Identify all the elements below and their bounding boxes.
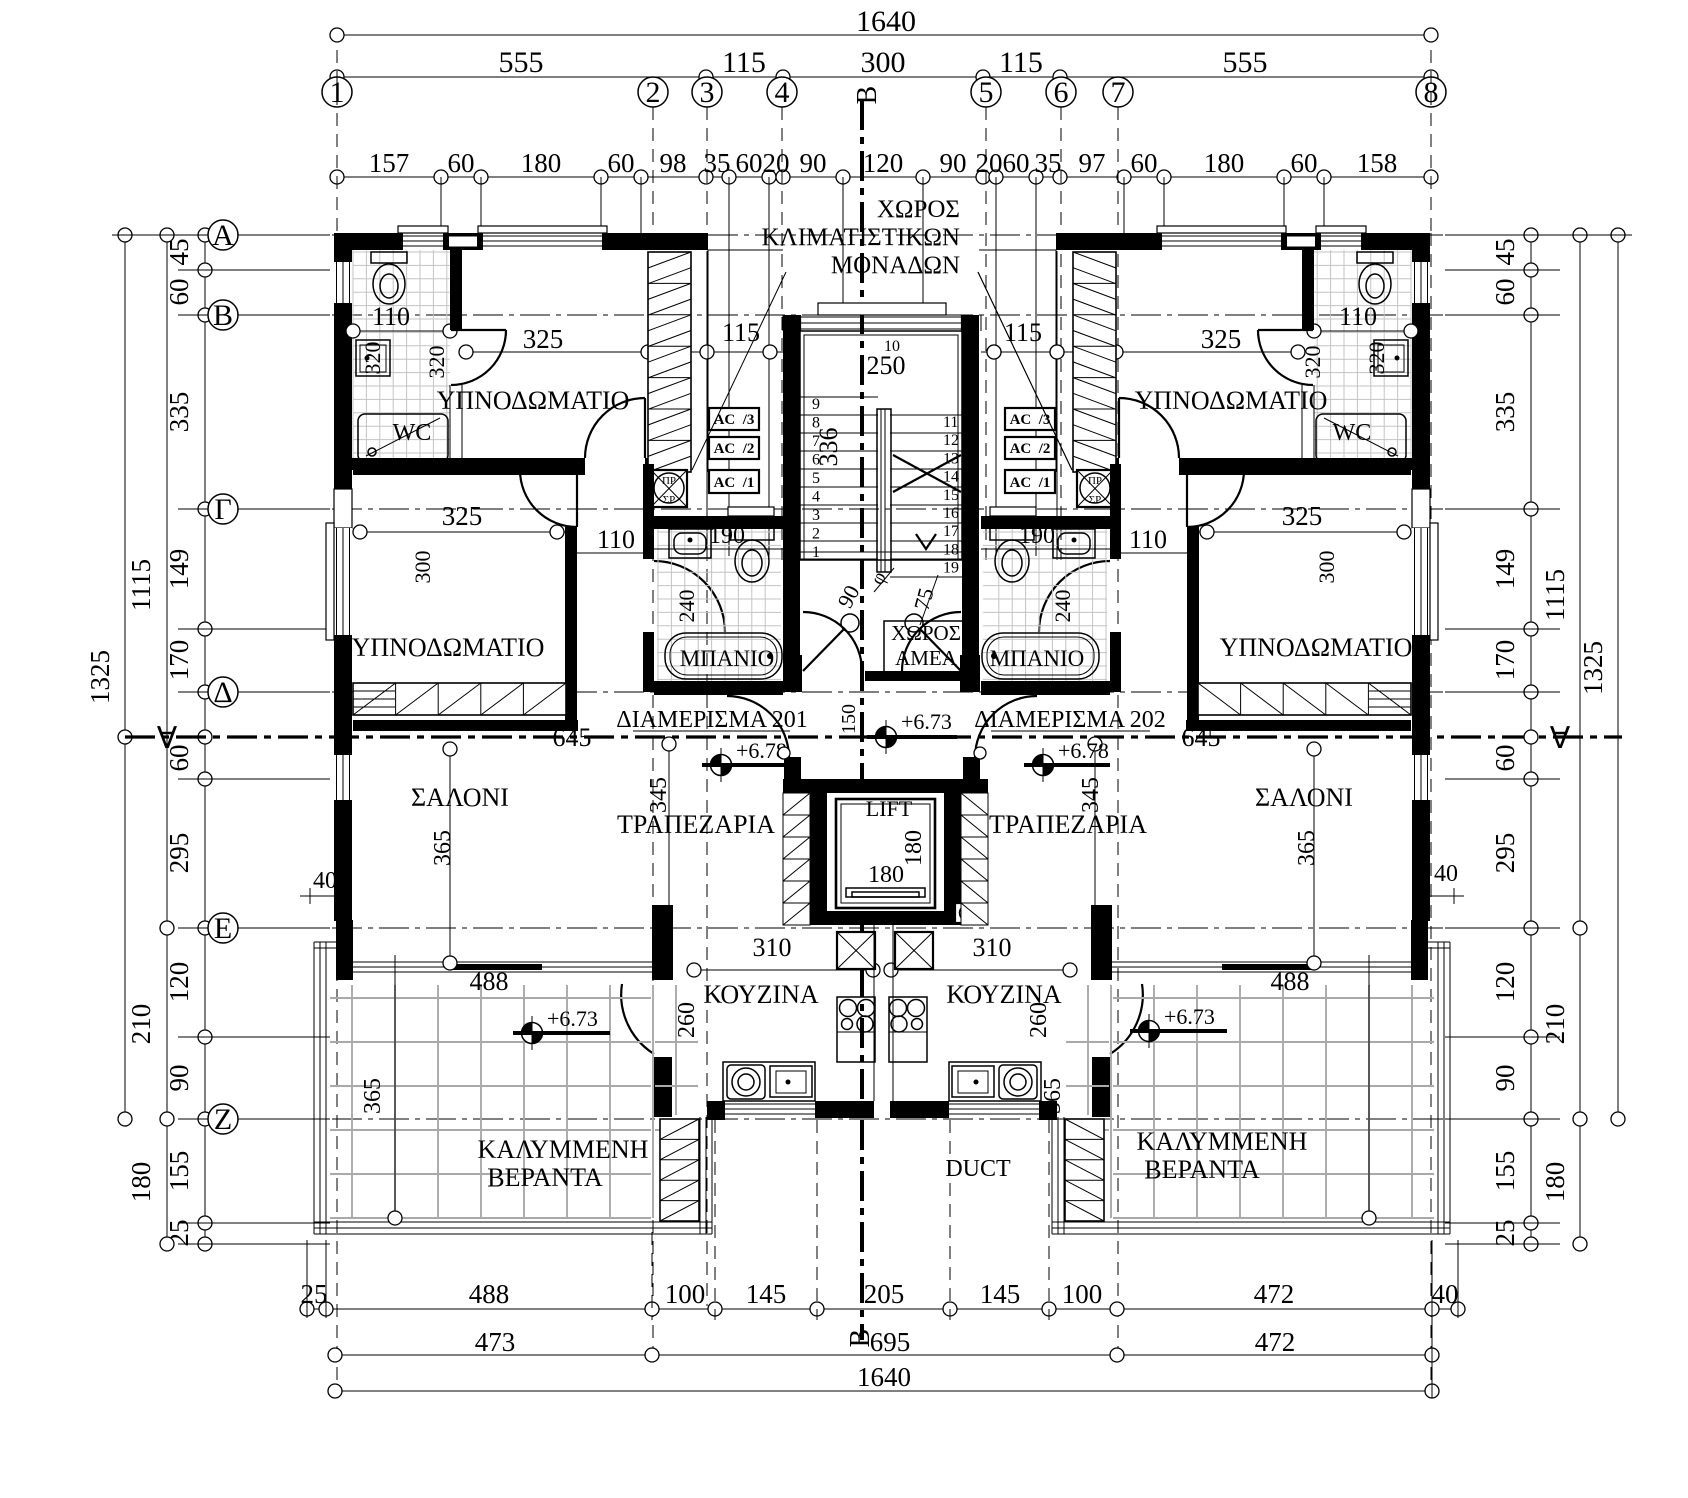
svg-text:645: 645 xyxy=(1182,723,1221,752)
svg-text:320: 320 xyxy=(1364,342,1389,375)
svg-text:40: 40 xyxy=(1432,1279,1459,1309)
svg-text:260: 260 xyxy=(1026,1002,1052,1038)
svg-text:∀: ∀ xyxy=(1550,722,1571,755)
svg-text:5: 5 xyxy=(812,470,820,487)
svg-text:+6.73: +6.73 xyxy=(547,1006,598,1031)
svg-text:335: 335 xyxy=(164,392,194,433)
svg-text:ΧΩΡΟΣ: ΧΩΡΟΣ xyxy=(877,196,960,223)
svg-text:A: A xyxy=(212,219,234,252)
svg-text:B: B xyxy=(852,86,883,105)
svg-text:170: 170 xyxy=(1490,640,1520,681)
svg-text:365: 365 xyxy=(1294,830,1320,866)
svg-text:115: 115 xyxy=(722,318,760,347)
svg-text:WC: WC xyxy=(393,420,432,446)
svg-text:240: 240 xyxy=(1050,590,1075,623)
svg-text:555: 555 xyxy=(1223,46,1268,79)
svg-text:Γ: Γ xyxy=(214,493,231,526)
svg-text:ΜΠΑΝΙΟ: ΜΠΑΝΙΟ xyxy=(680,646,775,671)
svg-text:110: 110 xyxy=(1129,525,1167,554)
svg-text:488: 488 xyxy=(470,967,509,996)
svg-text:35: 35 xyxy=(1035,148,1062,178)
svg-text:90: 90 xyxy=(940,148,967,178)
svg-text:60: 60 xyxy=(1003,148,1030,178)
svg-text:AC /1: AC /1 xyxy=(714,475,755,491)
svg-text:60: 60 xyxy=(448,148,475,178)
svg-text:60: 60 xyxy=(608,148,635,178)
svg-text:AC /3: AC /3 xyxy=(714,412,755,428)
svg-text:ΣΡ: ΣΡ xyxy=(663,494,676,506)
svg-text:115: 115 xyxy=(999,46,1043,79)
svg-text:1115: 1115 xyxy=(126,559,156,611)
svg-text:ΔΙΑΜΕΡΙΣΜΑ 201: ΔΙΑΜΕΡΙΣΜΑ 201 xyxy=(616,707,807,733)
svg-text:ΔΙΑΜΕΡΙΣΜΑ 202: ΔΙΑΜΕΡΙΣΜΑ 202 xyxy=(974,707,1165,733)
svg-text:ΚΛΙΜΑΤΙΣΤΙΚΩΝ: ΚΛΙΜΑΤΙΣΤΙΚΩΝ xyxy=(762,224,960,251)
svg-text:ΥΠΝΟΔΩΜΑΤΙΟ: ΥΠΝΟΔΩΜΑΤΙΟ xyxy=(437,386,630,415)
svg-text:60: 60 xyxy=(736,148,763,178)
svg-text:90: 90 xyxy=(1490,1065,1520,1092)
svg-text:145: 145 xyxy=(746,1279,787,1309)
svg-text:ΚΑΛΥΜΜΕΝΗ: ΚΑΛΥΜΜΕΝΗ xyxy=(1137,1127,1308,1156)
svg-text:ΚΟΥΖΙΝΑ: ΚΟΥΖΙΝΑ xyxy=(703,980,819,1009)
svg-text:1325: 1325 xyxy=(1578,641,1608,695)
svg-text:60: 60 xyxy=(1490,279,1520,306)
svg-text:45: 45 xyxy=(164,239,194,266)
svg-text:25: 25 xyxy=(1490,1220,1520,1247)
svg-text:5: 5 xyxy=(979,76,994,109)
svg-text:645: 645 xyxy=(553,723,592,752)
svg-text:98: 98 xyxy=(660,148,687,178)
svg-text:ΥΠΝΟΔΩΜΑΤΙΟ: ΥΠΝΟΔΩΜΑΤΙΟ xyxy=(1135,386,1328,415)
svg-text:90: 90 xyxy=(800,148,827,178)
svg-text:DUCT: DUCT xyxy=(945,1156,1011,1182)
svg-text:ΜΠΑΝΙΟ: ΜΠΑΝΙΟ xyxy=(990,646,1085,671)
svg-text:90: 90 xyxy=(164,1065,194,1092)
svg-text:325: 325 xyxy=(523,324,564,354)
svg-text:14: 14 xyxy=(943,469,959,486)
svg-text:2: 2 xyxy=(646,76,661,109)
svg-text:13: 13 xyxy=(943,450,959,467)
svg-text:320: 320 xyxy=(424,346,449,379)
svg-text:ΥΠΝΟΔΩΜΑΤΙΟ: ΥΠΝΟΔΩΜΑΤΙΟ xyxy=(352,633,545,662)
svg-text:250: 250 xyxy=(867,351,906,380)
svg-text:365: 365 xyxy=(430,830,456,866)
svg-text:555: 555 xyxy=(499,46,544,79)
svg-text:472: 472 xyxy=(1254,1279,1295,1309)
svg-text:145: 145 xyxy=(980,1279,1021,1309)
svg-text:ΤΡΑΠΕΖΑΡΙΑ: ΤΡΑΠΕΖΑΡΙΑ xyxy=(989,810,1147,839)
svg-text:157: 157 xyxy=(369,148,410,178)
svg-text:Z: Z xyxy=(214,1103,232,1136)
svg-text:97: 97 xyxy=(1079,148,1106,178)
svg-text:325: 325 xyxy=(1282,501,1323,531)
svg-text:158: 158 xyxy=(1357,148,1398,178)
svg-text:150: 150 xyxy=(838,704,860,734)
svg-text:35: 35 xyxy=(704,148,731,178)
svg-text:205: 205 xyxy=(864,1279,905,1309)
svg-text:20: 20 xyxy=(763,148,790,178)
svg-text:325: 325 xyxy=(1201,324,1242,354)
svg-text:488: 488 xyxy=(1271,967,1310,996)
svg-text:295: 295 xyxy=(164,833,194,874)
svg-text:∀: ∀ xyxy=(157,722,178,755)
svg-text:+6.73: +6.73 xyxy=(901,709,952,734)
svg-text:300: 300 xyxy=(1314,551,1339,584)
svg-text:B: B xyxy=(213,299,233,332)
svg-text:110: 110 xyxy=(597,525,635,554)
svg-text:19: 19 xyxy=(943,560,959,577)
svg-text:45: 45 xyxy=(1490,239,1520,266)
svg-text:260: 260 xyxy=(674,1002,700,1038)
svg-text:ΚΑΛΥΜΜΕΝΗ: ΚΑΛΥΜΜΕΝΗ xyxy=(478,1135,649,1164)
svg-text:115: 115 xyxy=(1004,318,1042,347)
svg-text:180: 180 xyxy=(901,830,927,866)
svg-text:320: 320 xyxy=(360,342,385,375)
svg-text:+6.73: +6.73 xyxy=(1164,1004,1215,1029)
svg-text:320: 320 xyxy=(1300,346,1325,379)
svg-text:180: 180 xyxy=(868,862,904,888)
svg-text:345: 345 xyxy=(646,777,672,813)
svg-text:18: 18 xyxy=(943,541,959,558)
svg-text:100: 100 xyxy=(665,1279,706,1309)
svg-text:120: 120 xyxy=(1490,962,1520,1003)
svg-text:+6.78: +6.78 xyxy=(1058,738,1109,763)
svg-text:190: 190 xyxy=(1019,523,1055,549)
svg-text:473: 473 xyxy=(475,1327,516,1357)
svg-text:12: 12 xyxy=(943,432,959,449)
svg-text:210: 210 xyxy=(126,1004,156,1045)
svg-text:365: 365 xyxy=(360,1078,386,1114)
svg-text:40: 40 xyxy=(313,868,337,894)
svg-text:ΒΕΡΑΝΤΑ: ΒΕΡΑΝΤΑ xyxy=(487,1163,603,1192)
svg-text:ΜΟΝΑΔΩΝ: ΜΟΝΑΔΩΝ xyxy=(831,252,960,279)
svg-text:310: 310 xyxy=(973,933,1012,962)
svg-text:310: 310 xyxy=(753,933,792,962)
svg-text:ΣΡ: ΣΡ xyxy=(1089,494,1102,506)
svg-text:AC /2: AC /2 xyxy=(1010,441,1051,457)
svg-text:180: 180 xyxy=(521,148,562,178)
svg-text:ΠΡ: ΠΡ xyxy=(662,475,676,487)
svg-text:336: 336 xyxy=(814,428,843,467)
svg-text:ΤΡΑΠΕΖΑΡΙΑ: ΤΡΑΠΕΖΑΡΙΑ xyxy=(617,810,775,839)
svg-text:25: 25 xyxy=(301,1279,328,1309)
svg-text:190: 190 xyxy=(709,523,745,549)
svg-text:210: 210 xyxy=(1540,1004,1570,1045)
svg-text:170: 170 xyxy=(164,640,194,681)
svg-text:AC /3: AC /3 xyxy=(1010,412,1051,428)
svg-text:40: 40 xyxy=(1434,861,1458,887)
svg-text:1: 1 xyxy=(812,544,820,561)
svg-text:3: 3 xyxy=(812,507,820,524)
svg-text:15: 15 xyxy=(943,487,959,504)
svg-text:AC /2: AC /2 xyxy=(714,441,755,457)
svg-text:60: 60 xyxy=(1291,148,1318,178)
svg-text:60: 60 xyxy=(1490,745,1520,772)
svg-text:6: 6 xyxy=(1054,76,1069,109)
svg-text:LIFT: LIFT xyxy=(866,796,913,821)
svg-text:1640: 1640 xyxy=(856,5,916,38)
svg-text:60: 60 xyxy=(1131,148,1158,178)
svg-text:240: 240 xyxy=(674,590,699,623)
svg-text:16: 16 xyxy=(943,505,959,522)
svg-text:345: 345 xyxy=(1078,777,1104,813)
svg-text:1640: 1640 xyxy=(857,1362,911,1392)
svg-text:180: 180 xyxy=(126,1162,156,1203)
svg-text:472: 472 xyxy=(1255,1327,1296,1357)
svg-text:1325: 1325 xyxy=(85,650,115,704)
svg-text:2: 2 xyxy=(812,526,820,543)
svg-text:110: 110 xyxy=(372,302,410,331)
svg-text:AC /1: AC /1 xyxy=(1010,475,1051,491)
svg-text:ΥΠΝΟΔΩΜΑΤΙΟ: ΥΠΝΟΔΩΜΑΤΙΟ xyxy=(1220,633,1413,662)
svg-text:ΠΡ: ΠΡ xyxy=(1088,475,1102,487)
svg-text:488: 488 xyxy=(469,1279,510,1309)
svg-text:ΒΕΡΑΝΤΑ: ΒΕΡΑΝΤΑ xyxy=(1144,1155,1260,1184)
svg-text:695: 695 xyxy=(870,1327,911,1357)
svg-text:155: 155 xyxy=(164,1151,194,1192)
svg-text:ΣΑΛΟΝΙ: ΣΑΛΟΝΙ xyxy=(1255,783,1353,812)
svg-text:WC: WC xyxy=(1333,420,1372,446)
svg-text:4: 4 xyxy=(812,489,820,506)
svg-text:9: 9 xyxy=(812,396,820,413)
svg-text:7: 7 xyxy=(1111,76,1126,109)
svg-text:115: 115 xyxy=(722,46,766,79)
svg-text:300: 300 xyxy=(410,551,435,584)
svg-text:120: 120 xyxy=(164,962,194,1003)
svg-text:295: 295 xyxy=(1490,833,1520,874)
svg-text:120: 120 xyxy=(863,148,904,178)
svg-text:3: 3 xyxy=(700,76,715,109)
svg-text:E: E xyxy=(214,912,232,945)
svg-text:300: 300 xyxy=(861,46,906,79)
svg-text:20: 20 xyxy=(976,148,1003,178)
svg-text:ΣΑΛΟΝΙ: ΣΑΛΟΝΙ xyxy=(411,783,509,812)
svg-text:11: 11 xyxy=(943,414,958,431)
svg-text:365: 365 xyxy=(1040,1078,1066,1114)
svg-text:325: 325 xyxy=(442,501,483,531)
svg-text:180: 180 xyxy=(1204,148,1245,178)
svg-text:180: 180 xyxy=(1540,1162,1570,1203)
svg-text:4: 4 xyxy=(775,76,790,109)
svg-text:100: 100 xyxy=(1062,1279,1103,1309)
svg-text:Δ: Δ xyxy=(213,676,232,709)
svg-text:149: 149 xyxy=(164,549,194,590)
svg-text:335: 335 xyxy=(1490,392,1520,433)
svg-text:1115: 1115 xyxy=(1540,569,1570,621)
svg-text:17: 17 xyxy=(943,523,959,540)
svg-text:60: 60 xyxy=(164,279,194,306)
svg-text:155: 155 xyxy=(1490,1151,1520,1192)
svg-text:110: 110 xyxy=(1339,302,1377,331)
svg-text:149: 149 xyxy=(1490,549,1520,590)
